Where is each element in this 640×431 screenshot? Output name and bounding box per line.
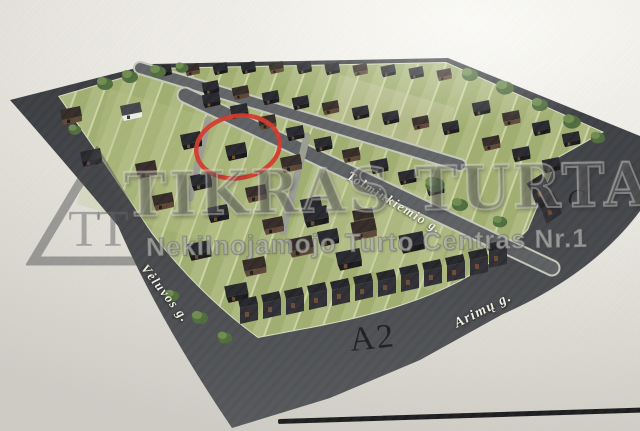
zone-label-a2: A2: [348, 317, 397, 360]
watermark-title: TIKRAS TURTAS: [123, 154, 640, 226]
watermark-logo-text: TT: [68, 201, 128, 258]
photo-of-site-plan: Tolminkiemio g. Vėluvos g. Arimų g. A2 C…: [0, 0, 640, 431]
